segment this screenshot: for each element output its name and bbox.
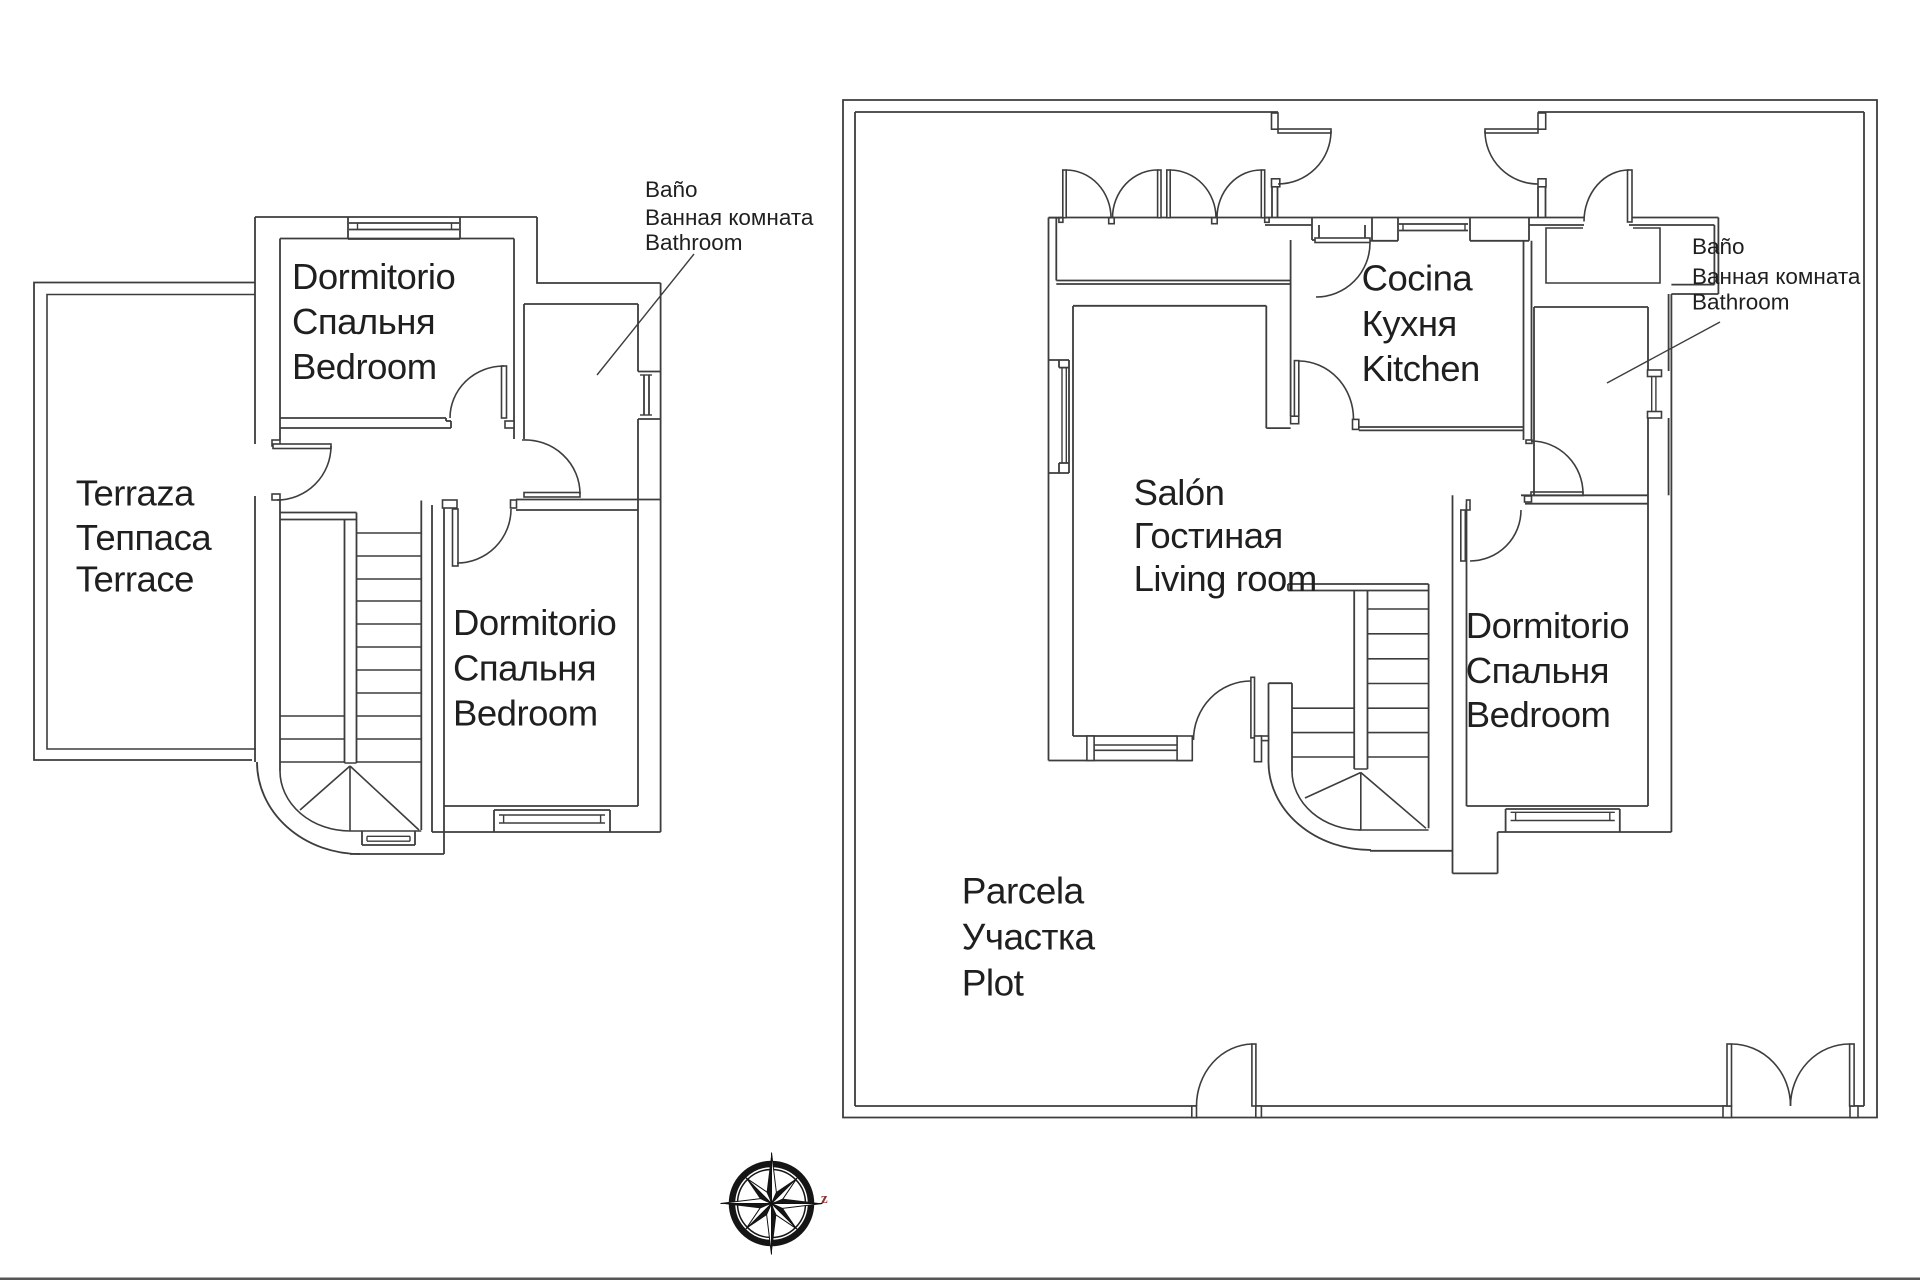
- svg-text:Bedroom: Bedroom: [453, 693, 598, 734]
- svg-text:Bedroom: Bedroom: [292, 346, 437, 387]
- svg-text:Bathroom: Bathroom: [645, 230, 743, 255]
- svg-text:Спальня: Спальня: [453, 648, 596, 689]
- svg-text:z: z: [821, 1191, 828, 1207]
- svg-text:Bathroom: Bathroom: [1692, 290, 1790, 315]
- svg-text:Спальня: Спальня: [292, 301, 435, 342]
- svg-text:Parcela: Parcela: [962, 871, 1085, 912]
- svg-text:Kitchen: Kitchen: [1362, 348, 1480, 389]
- svg-text:Salón: Salón: [1134, 472, 1225, 513]
- svg-text:Baño: Baño: [645, 177, 698, 202]
- svg-text:Bedroom: Bedroom: [1466, 694, 1611, 735]
- svg-text:Dormitorio: Dormitorio: [1466, 605, 1629, 646]
- svg-text:Спальня: Спальня: [1466, 650, 1609, 691]
- svg-text:Terrace: Terrace: [76, 559, 194, 600]
- svg-text:Living room: Living room: [1134, 558, 1317, 599]
- svg-text:Участка: Участка: [962, 917, 1096, 958]
- svg-text:Теппаса: Теппаса: [76, 517, 213, 558]
- svg-text:Dormitorio: Dormitorio: [453, 602, 616, 643]
- svg-text:Cocina: Cocina: [1362, 258, 1474, 299]
- svg-text:Кухня: Кухня: [1362, 303, 1457, 344]
- svg-text:Baño: Baño: [1692, 234, 1745, 259]
- svg-text:Ванная комната: Ванная комната: [1692, 264, 1861, 289]
- svg-text:Terraza: Terraza: [76, 473, 195, 514]
- svg-text:Ванная комната: Ванная комната: [645, 205, 814, 230]
- svg-text:Гостиная: Гостиная: [1134, 515, 1283, 556]
- svg-text:Dormitorio: Dormitorio: [292, 256, 455, 297]
- svg-text:Plot: Plot: [962, 963, 1025, 1004]
